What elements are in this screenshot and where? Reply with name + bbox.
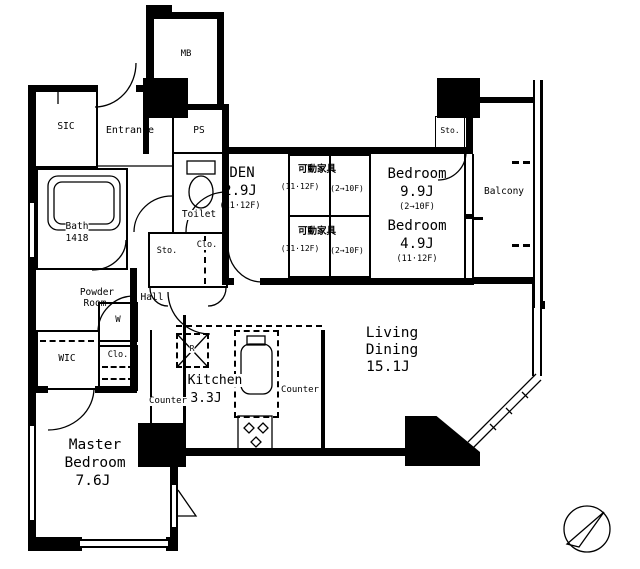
label-bedroom-a-floors: (2→10F) <box>399 203 435 212</box>
label-sto-upper: Sto. <box>440 127 459 135</box>
label-den-name: DEN <box>229 166 254 180</box>
label-sto-mid: Sto. <box>157 247 177 256</box>
label-washer: W <box>115 316 120 325</box>
label-bedroom-a-name: Bedroom <box>387 167 446 181</box>
label-living-area: 15.1J <box>366 360 410 375</box>
label-counter-right: Counter <box>281 386 319 395</box>
label-movable1-floors-b: (2→10F) <box>330 185 364 193</box>
label-wic: WIC <box>58 354 75 364</box>
label-powder-1: Powder <box>80 288 114 298</box>
label-den-area: 2.9J <box>223 184 257 198</box>
label-counter-left: Counter <box>149 397 187 406</box>
label-movable1-floors-a: (11·12F) <box>281 183 320 191</box>
compass-icon <box>564 506 610 552</box>
bath-door-arc <box>92 240 126 270</box>
label-movable1-name: 可動家具 <box>298 165 336 175</box>
label-movable2-floors-b: (2→10F) <box>330 247 364 255</box>
label-hall: Hall <box>141 293 164 303</box>
label-clo-left: Clo. <box>108 351 128 360</box>
master-window-flap <box>178 490 196 516</box>
label-powder-2: Room <box>84 299 107 309</box>
label-living-2: Dining <box>366 343 418 358</box>
label-clo-mid: Clo. <box>197 241 217 250</box>
bay-window-diagonal <box>468 374 541 448</box>
floor-plan: MB Entrance PS SIC Toilet Bath 1418 DEN … <box>0 0 640 569</box>
label-master-area: 7.6J <box>76 474 111 489</box>
label-bedroom-b-name: Bedroom <box>387 219 446 233</box>
kitchen-door-arc <box>168 292 210 334</box>
label-toilet: Toilet <box>182 210 216 220</box>
label-bath-name: Bath <box>66 222 89 232</box>
toilet-door-arc <box>134 196 172 232</box>
storage-door-arc-right <box>208 288 226 306</box>
label-kitchen-area: 3.3J <box>190 392 221 405</box>
balcony-partition-ticks <box>512 161 530 247</box>
den-door-arc <box>228 246 262 282</box>
label-living-1: Living <box>366 326 418 341</box>
label-sic: SIC <box>57 122 74 132</box>
kitchen-sink-figure <box>241 336 272 394</box>
label-kitchen-name: Kitchen <box>188 374 243 387</box>
label-balcony: Balcony <box>484 187 524 197</box>
label-den-floors: (11·12F) <box>220 202 261 211</box>
label-master-2: Bedroom <box>64 456 125 471</box>
stove-figure <box>238 416 272 450</box>
label-master-1: Master <box>69 438 121 453</box>
entrance-door-arc <box>95 63 136 107</box>
label-mb: MB <box>181 50 192 59</box>
label-bedroom-b-floors: (11·12F) <box>397 255 438 264</box>
label-entrance: Entrance <box>106 126 154 136</box>
label-fridge: R <box>190 345 195 353</box>
label-bedroom-a-area: 9.9J <box>400 185 434 199</box>
label-ps: PS <box>193 126 204 136</box>
label-bath-size: 1418 <box>66 234 89 244</box>
label-movable2-name: 可動家具 <box>298 227 336 237</box>
label-bedroom-b-area: 4.9J <box>400 237 434 251</box>
master-door-arc <box>48 388 94 430</box>
label-movable2-floors-a: (11·12F) <box>281 245 320 253</box>
